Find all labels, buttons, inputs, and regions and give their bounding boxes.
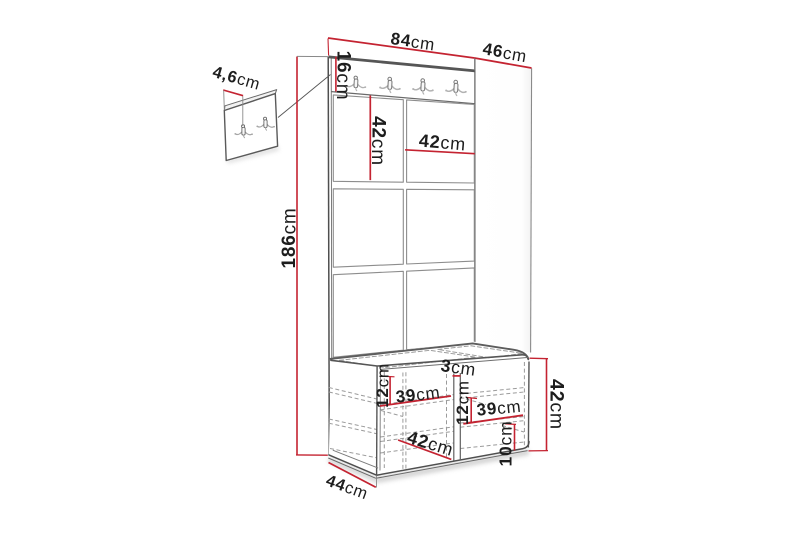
svg-text:186cm: 186cm	[279, 207, 300, 268]
svg-text:12cm: 12cm	[453, 380, 472, 425]
svg-text:16cm: 16cm	[333, 51, 354, 101]
svg-text:42cm: 42cm	[418, 130, 467, 154]
svg-text:42cm: 42cm	[546, 379, 568, 430]
svg-text:42cm: 42cm	[367, 116, 388, 166]
svg-text:10cm: 10cm	[496, 420, 516, 466]
svg-text:12cm: 12cm	[373, 363, 392, 408]
